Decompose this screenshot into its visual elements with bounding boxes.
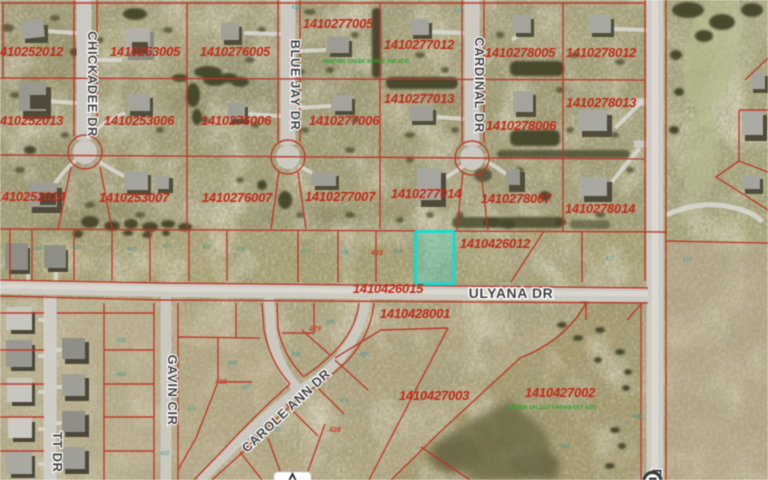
svg-text:1410278012: 1410278012 <box>566 45 637 60</box>
svg-text:1410276007: 1410276007 <box>202 190 273 205</box>
svg-text:414: 414 <box>393 249 402 255</box>
svg-text:1410277006: 1410277006 <box>309 113 380 128</box>
svg-text:410: 410 <box>682 257 691 263</box>
svg-text:424: 424 <box>339 398 348 404</box>
svg-text:420: 420 <box>202 244 211 250</box>
svg-text:417: 417 <box>300 249 309 255</box>
svg-text:428: 428 <box>370 250 383 257</box>
svg-text:408: 408 <box>632 414 641 420</box>
svg-text:1410277005: 1410277005 <box>303 16 374 31</box>
svg-text:ULYANA DR: ULYANA DR <box>469 285 554 301</box>
svg-text:BLUE JAY DR: BLUE JAY DR <box>288 40 303 131</box>
svg-text:428: 428 <box>328 427 341 434</box>
svg-text:1410278006: 1410278006 <box>486 118 557 133</box>
svg-text:431: 431 <box>187 406 196 412</box>
svg-text:1410252012: 1410252012 <box>0 44 64 59</box>
svg-text:CARDINAL DR: CARDINAL DR <box>472 37 487 133</box>
svg-text:416: 416 <box>339 250 348 256</box>
svg-text:422: 422 <box>127 247 136 253</box>
svg-text:WINDING CREEK ACRES 2ND ADD: WINDING CREEK ACRES 2ND ADD <box>323 59 410 65</box>
svg-text:1410277007: 1410277007 <box>305 189 376 204</box>
svg-text:426: 426 <box>291 352 300 358</box>
svg-text:424: 424 <box>32 246 41 252</box>
svg-text:419: 419 <box>235 247 244 253</box>
svg-text:418: 418 <box>291 5 300 11</box>
svg-text:429: 429 <box>308 326 321 333</box>
svg-text:432: 432 <box>160 451 169 457</box>
svg-text:1410252014: 1410252014 <box>0 189 66 204</box>
svg-text:434: 434 <box>116 372 125 378</box>
svg-text:1410276006: 1410276006 <box>201 113 272 128</box>
svg-text:1410276005: 1410276005 <box>200 44 271 59</box>
svg-text:1410427003: 1410427003 <box>399 388 470 403</box>
svg-text:1410278007: 1410278007 <box>481 191 552 206</box>
svg-text:1410277012: 1410277012 <box>384 37 455 52</box>
svg-text:433: 433 <box>116 338 125 344</box>
svg-text:1410278005: 1410278005 <box>485 45 556 60</box>
svg-text:1410253005: 1410253005 <box>110 44 181 59</box>
svg-text:406: 406 <box>560 444 569 450</box>
svg-text:CHICKADEE DR: CHICKADEE DR <box>85 31 100 137</box>
svg-text:1410277013: 1410277013 <box>384 91 455 106</box>
svg-text:1410426012: 1410426012 <box>460 236 531 251</box>
svg-text:GREEN VALLEY FARMS 1ST ADD: GREEN VALLEY FARMS 1ST ADD <box>507 405 596 411</box>
svg-text:1410278013: 1410278013 <box>566 95 637 110</box>
svg-text:1410426015: 1410426015 <box>353 281 424 296</box>
svg-text:1410277014: 1410277014 <box>391 186 462 201</box>
svg-text:425: 425 <box>326 320 335 326</box>
svg-text:430: 430 <box>214 379 227 386</box>
svg-text:1410427002: 1410427002 <box>525 385 596 400</box>
svg-text:1410253007: 1410253007 <box>99 190 170 205</box>
svg-text:TT DR: TT DR <box>50 432 65 473</box>
svg-text:1410278014: 1410278014 <box>565 201 636 216</box>
svg-text:1410252013: 1410252013 <box>0 113 64 128</box>
svg-text:413: 413 <box>454 8 463 14</box>
svg-text:423: 423 <box>359 352 368 358</box>
svg-text:1410428001: 1410428001 <box>380 306 450 321</box>
svg-text:GAVIN CIR: GAVIN CIR <box>165 355 180 426</box>
svg-text:412: 412 <box>605 256 614 262</box>
svg-text:421: 421 <box>162 244 171 250</box>
svg-text:1410253006: 1410253006 <box>104 113 175 128</box>
svg-text:423: 423 <box>72 245 81 251</box>
svg-text:430: 430 <box>228 361 237 367</box>
svg-text:427: 427 <box>242 385 251 391</box>
